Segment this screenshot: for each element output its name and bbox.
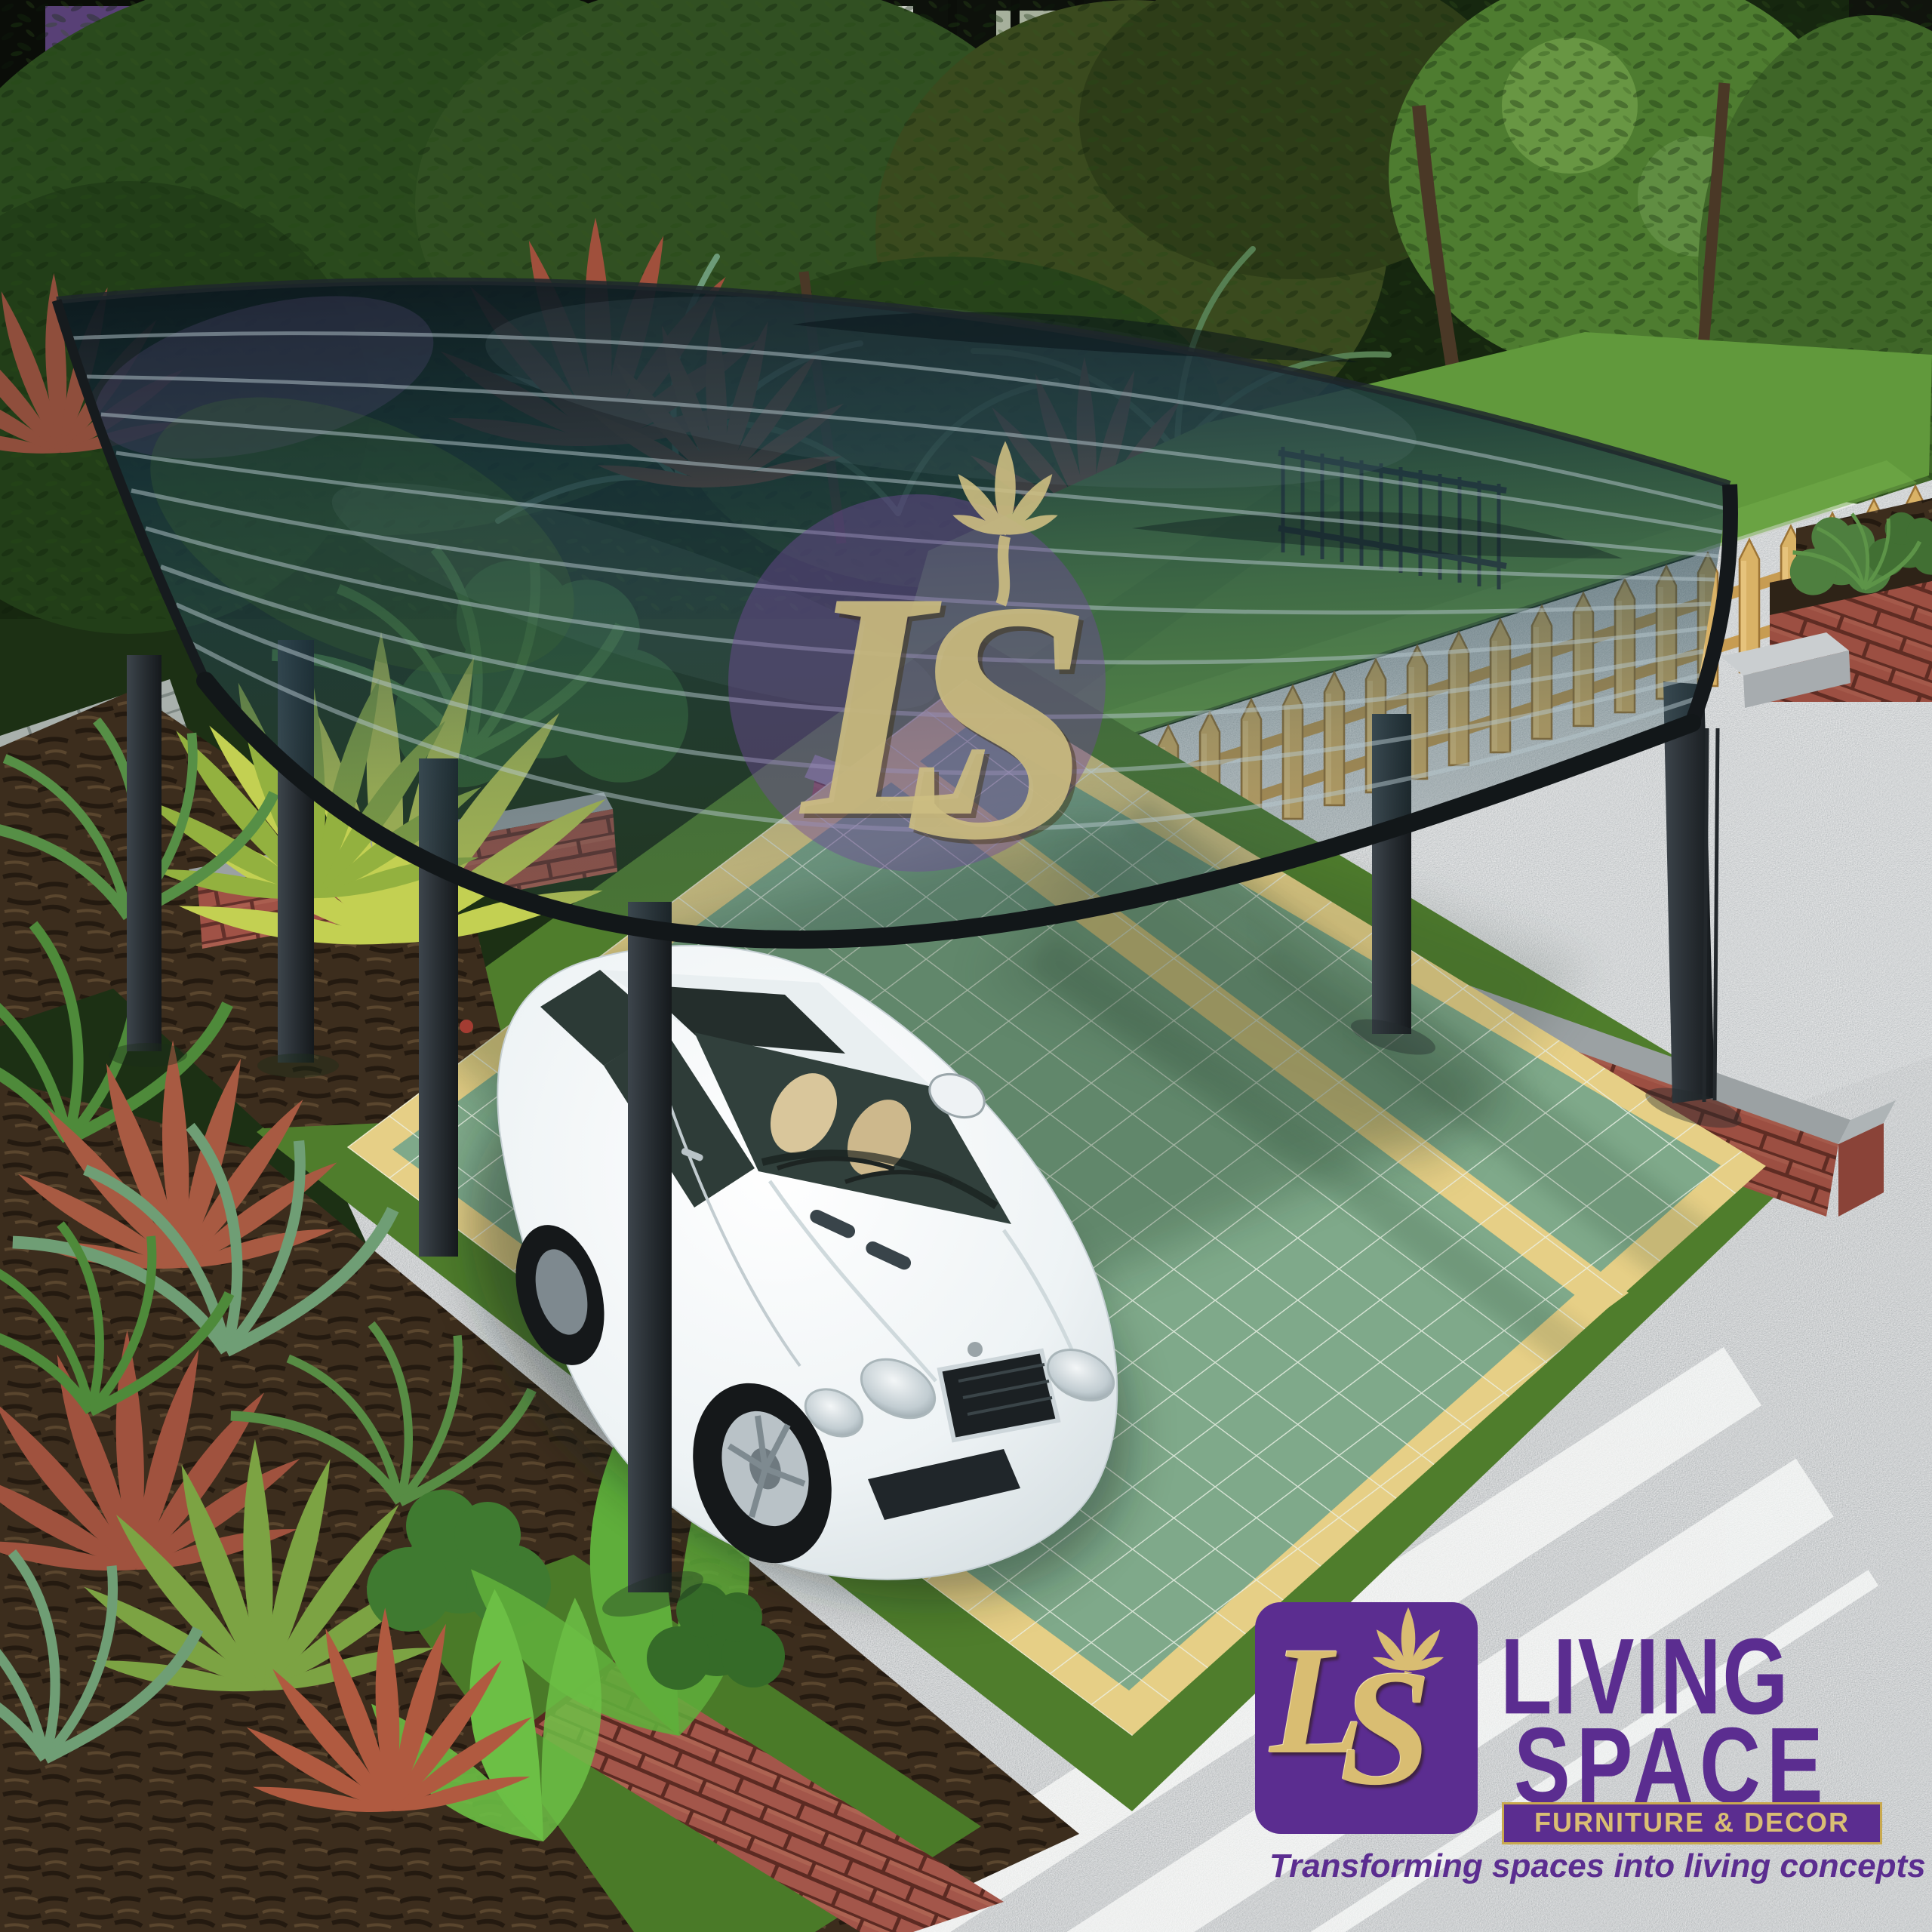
badge [968,1342,983,1357]
post [127,655,162,1051]
brand-subtitle-bar: FURNITURE & DECOR [1502,1802,1882,1844]
post [628,902,672,1592]
logo-badge: L S [1255,1602,1478,1834]
watermark-letter-s: S [903,531,1094,911]
logo-lotus-icon [1359,1605,1457,1673]
render-canvas: L S L S L S LIVING SPACE FURNITURE & DEC… [0,0,1932,1932]
taillight [460,1020,473,1033]
brand-tagline: Transforming spaces into living concepts [1269,1847,1903,1885]
